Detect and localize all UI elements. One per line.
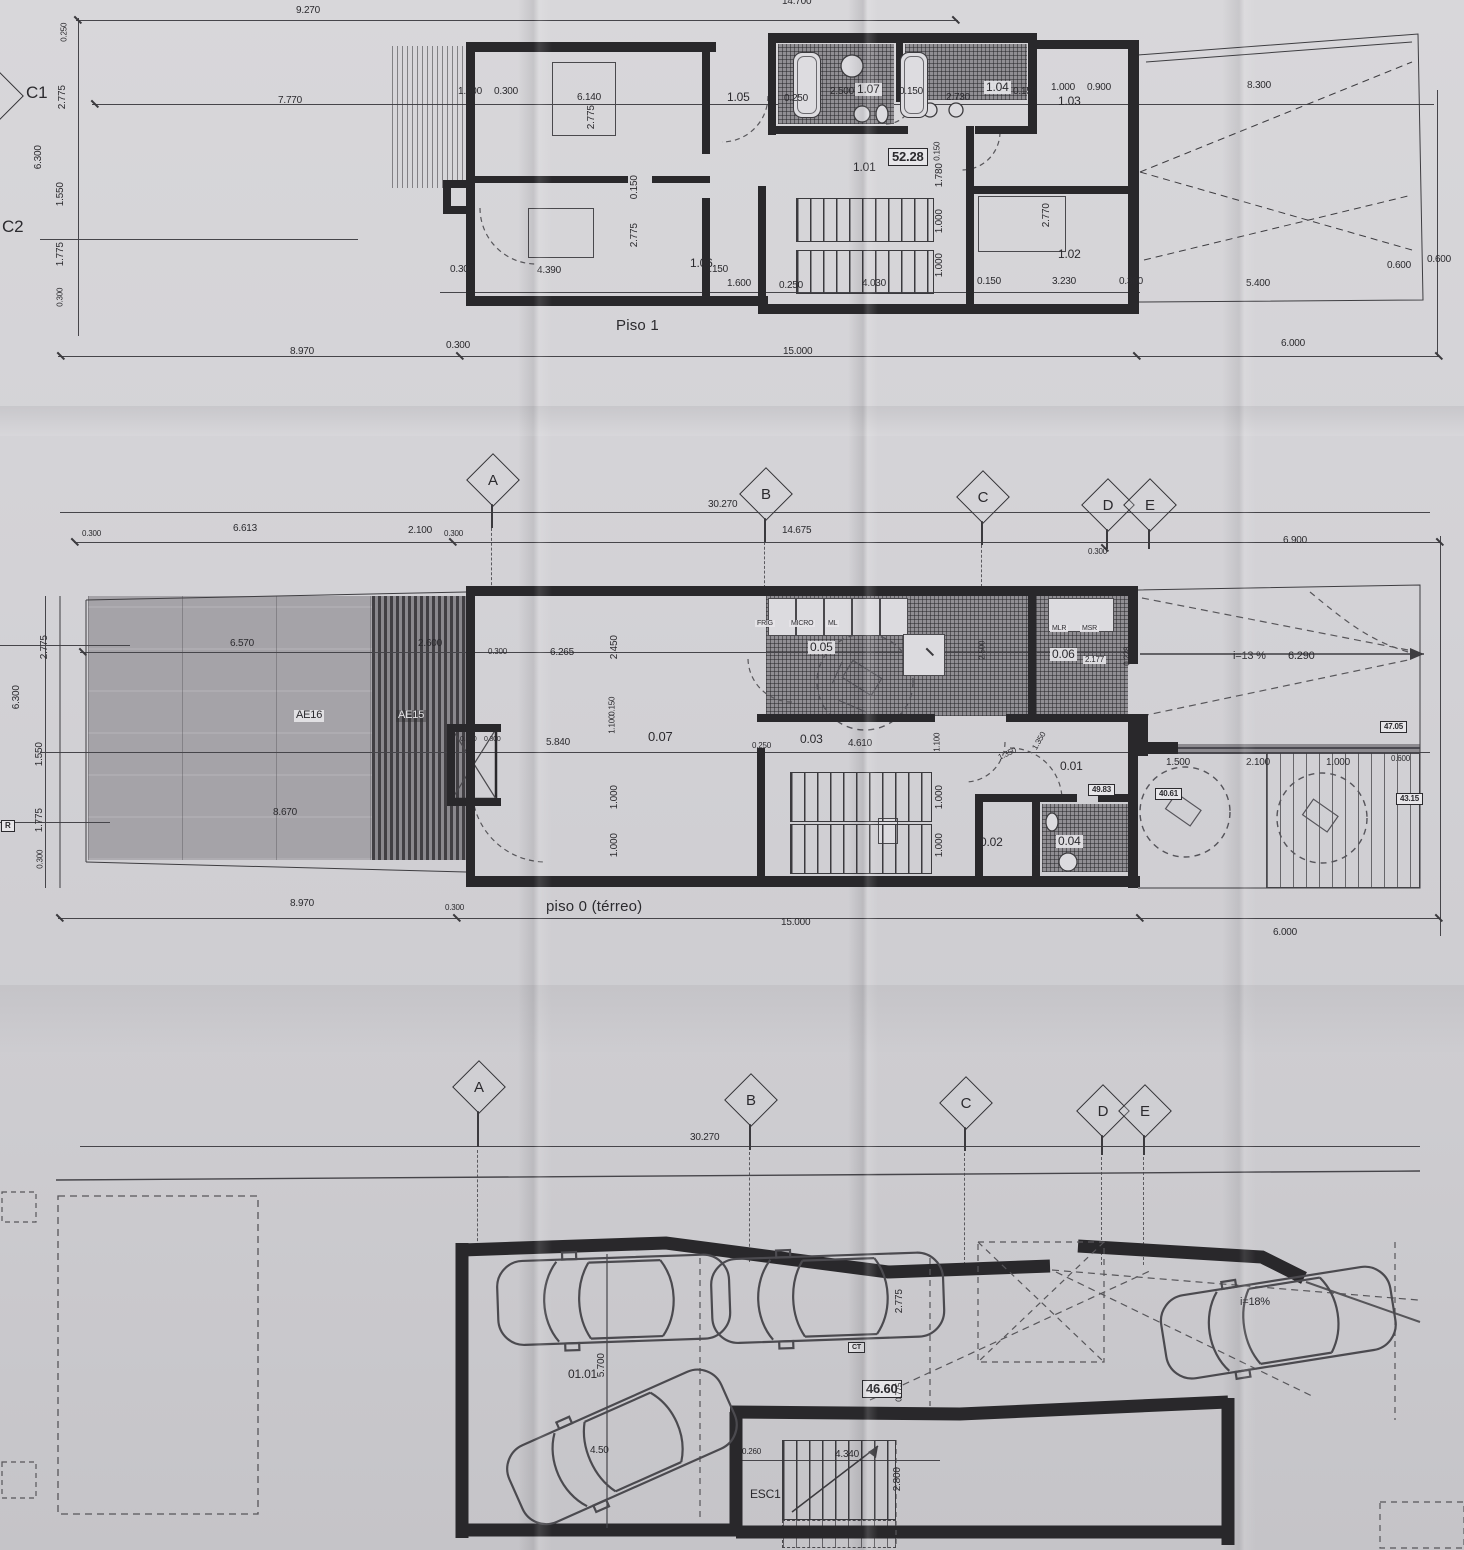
wall — [1006, 714, 1138, 722]
dim-label: 2.800 — [893, 1467, 904, 1491]
dim-line — [40, 239, 358, 240]
appliance-label-micro: MICRO — [789, 620, 815, 627]
dim-label: 0.150 — [933, 142, 941, 161]
dim-label: 1.100 — [933, 733, 941, 752]
area-box: 40.61 — [1155, 788, 1182, 800]
dim-label: 6.000 — [1281, 339, 1305, 350]
dim-label: 0.300 — [56, 288, 64, 307]
dim-label: 4.610 — [848, 739, 872, 750]
dim-label: 2.775 — [630, 223, 641, 247]
dim-label: 1.000 — [1051, 83, 1075, 94]
paper-crease-vertical — [1222, 0, 1256, 1550]
dim-label: 0.300 — [494, 87, 518, 98]
dim-label: 0.300 — [36, 850, 44, 869]
staircase-dashed — [782, 1520, 896, 1548]
stair-label-esc1: ESC1 — [750, 1488, 781, 1501]
wall — [758, 304, 1139, 314]
grid-diamond-c: C — [939, 1076, 993, 1130]
dim-line — [76, 20, 958, 21]
stove — [903, 634, 945, 676]
grid-stem — [981, 521, 983, 545]
wall — [1028, 594, 1036, 720]
dim-label: 15.000 — [781, 918, 810, 929]
wall — [1028, 40, 1138, 49]
dim-label: 6.900 — [1283, 536, 1307, 547]
grid-dash — [764, 542, 765, 588]
room-label: 0.01 — [1060, 760, 1083, 773]
room-label: 0.04 — [1056, 835, 1083, 848]
kitchen-counter — [852, 598, 880, 636]
dim-label: 0.300 — [484, 736, 501, 743]
dim-label: 0.260 — [742, 1448, 761, 1456]
room-label: 0.02 — [980, 836, 1003, 849]
dim-label: 0.250 — [779, 281, 803, 292]
ct-box: CT — [848, 1342, 865, 1353]
dim-label: 7.770 — [278, 96, 302, 107]
wall — [447, 724, 455, 806]
room-label: 1.02 — [1058, 248, 1081, 261]
area-box: 47.05 — [1380, 721, 1407, 733]
dim-label: 0.300 — [488, 648, 507, 656]
dim-line — [74, 542, 1440, 543]
dim-label: 30.270 — [708, 500, 737, 511]
paper-crease-horizontal — [0, 406, 1464, 436]
dim-label: 0.600 — [1387, 261, 1411, 272]
dim-label: 0.510 — [460, 736, 477, 743]
grid-dash — [1101, 1157, 1102, 1265]
staircase — [790, 772, 932, 822]
dim-label: 2.500 — [830, 87, 854, 98]
appliance-label-frig: FRIG — [755, 620, 775, 627]
dim-label: 2.600 — [418, 639, 442, 650]
wall — [757, 714, 935, 722]
dim-label: 2.775 — [895, 1289, 906, 1313]
grid-diamond-e: E — [1118, 1084, 1172, 1138]
dim-label: 0.228 — [1123, 647, 1131, 666]
dim-label: 0.775 — [895, 1383, 903, 1402]
wall — [1128, 40, 1139, 314]
dim-label: 1.600 — [727, 279, 751, 290]
kitchen-counter — [880, 598, 908, 636]
grid-row-label-r: R — [1, 820, 15, 832]
dim-label: 0.300 — [444, 530, 463, 538]
bed-outline — [978, 196, 1066, 252]
dim-label: 1.000 — [935, 253, 946, 277]
dim-label: 2.775 — [587, 105, 598, 129]
appliance-label-mlr: MLR — [1050, 625, 1068, 632]
dim-label: 2.770 — [1042, 203, 1053, 227]
dim-label: 1.000 — [610, 785, 621, 809]
ramp-length-label: 6.290 — [1288, 651, 1315, 663]
dim-line — [0, 645, 130, 646]
dim-label: 6.265 — [550, 648, 574, 659]
wall — [447, 724, 501, 732]
dim-line — [0, 822, 110, 823]
garage-boundary — [2, 1171, 1464, 1548]
dim-label: 14.700 — [782, 0, 811, 8]
blueprint-sheet: 9.270 14.700 C1 C2 7.770 1.500 0.300 6.1… — [0, 0, 1464, 1550]
piso0-ramp-lines — [1140, 592, 1424, 716]
grid-diamond-b: B — [724, 1073, 778, 1127]
dim-label: 1.500 — [1166, 758, 1190, 769]
wall — [1130, 742, 1178, 754]
paper-crease-horizontal — [0, 985, 1464, 1055]
room-label: 1.07 — [855, 83, 882, 96]
dim-label: 1.000 — [610, 833, 621, 857]
dim-label: 0.250 — [752, 742, 771, 750]
dim-line — [78, 18, 79, 336]
grid-dash — [981, 545, 982, 587]
dim-label: 0.900 — [1087, 83, 1111, 94]
dim-label: 5.400 — [1246, 279, 1270, 290]
dim-label: 1.775 — [35, 808, 46, 832]
wall — [1028, 33, 1037, 134]
dim-label: 1.500 — [458, 87, 482, 98]
wall — [443, 206, 469, 214]
room-label: 1.01 — [853, 161, 876, 174]
grid-stem — [477, 1111, 479, 1147]
dim-label: 8.970 — [290, 899, 314, 910]
wall — [966, 126, 974, 314]
dim-label: 0.600 — [1427, 255, 1451, 266]
dim-label: 1.550 — [56, 182, 67, 206]
dim-label: 5.700 — [597, 1353, 608, 1377]
dim-label: 2.730 — [946, 93, 970, 104]
dim-line — [80, 652, 1130, 653]
grid-stem — [491, 504, 493, 528]
grid-diamond-a: A — [466, 453, 520, 507]
dim-label: 1.100 — [608, 715, 616, 734]
plan-title-piso0: piso 0 (térreo) — [546, 899, 642, 915]
dim-label: 0.150 — [608, 697, 616, 716]
dim-label: 0.150 — [1013, 87, 1037, 98]
bathtub — [900, 52, 928, 118]
dim-line — [58, 356, 1440, 357]
grid-stem — [749, 1124, 751, 1150]
dim-label: 6.613 — [233, 524, 257, 535]
dim-label: 1.780 — [935, 163, 946, 187]
kitchen-counter — [796, 598, 824, 636]
kitchen-counter — [824, 598, 852, 636]
dim-label: 15.000 — [783, 347, 812, 358]
dim-label: 0.300 — [446, 341, 470, 352]
wall — [702, 198, 710, 302]
dim-label: 2.500 — [978, 641, 986, 660]
dim-label: 6.140 — [577, 93, 601, 104]
grid-dash — [964, 1153, 965, 1265]
grid-diamond-partial — [0, 69, 24, 123]
dim-label: 0.150 — [704, 265, 728, 276]
deck-hatch — [392, 46, 466, 188]
dim-label: 2.100 — [408, 526, 432, 537]
dim-label: 1.350 — [1031, 731, 1048, 752]
wall — [652, 176, 710, 183]
area-box: 49.83 — [1088, 784, 1115, 796]
dim-label: 4.390 — [537, 266, 561, 277]
appliance-label-ml: ML — [826, 620, 839, 627]
dim-label: 2.100 — [1246, 758, 1270, 769]
area-box: 43.15 — [1396, 793, 1423, 805]
dim-label: 30.270 — [690, 1133, 719, 1144]
dim-label: 0.300 — [1088, 548, 1107, 556]
grid-row-label-c2: C2 — [2, 218, 23, 236]
grid-row-label-c1: C1 — [26, 84, 47, 102]
dim-label: 2.450 — [610, 635, 621, 659]
zone-label-ae16: AE16 — [294, 710, 324, 722]
dim-label: 0.300 — [82, 530, 101, 538]
patio-surface — [88, 596, 372, 860]
wall — [768, 33, 776, 135]
dim-label: 6.300 — [12, 685, 23, 709]
dim-label: 5.840 — [546, 738, 570, 749]
dim-label: 8.670 — [273, 808, 297, 819]
dim-label: 0.250 — [60, 23, 68, 42]
dim-label: 0.250 — [784, 94, 808, 105]
dim-label: 1.000 — [1326, 758, 1350, 769]
dim-label: 6.570 — [230, 639, 254, 650]
dim-label: 6.000 — [1273, 928, 1297, 939]
dim-label: 0.300 — [450, 265, 474, 276]
dim-label: 14.675 — [782, 526, 811, 537]
dim-label: 4.030 — [862, 279, 886, 290]
wall — [447, 798, 501, 806]
wall — [466, 42, 716, 52]
piso1-terrace-lines — [1138, 34, 1423, 302]
staircase — [790, 824, 932, 874]
grid-diamond-a: A — [452, 1060, 506, 1114]
dim-label: 3.230 — [1052, 277, 1076, 288]
dim-label: 2.177 — [1083, 656, 1106, 664]
grid-dash — [491, 528, 492, 590]
room-label: 01.01 — [568, 1368, 597, 1381]
dim-label: 1.000 — [935, 833, 946, 857]
room-label: 0.05 — [808, 641, 835, 654]
grid-diamond-c: C — [956, 470, 1010, 524]
dim-line — [60, 512, 1430, 513]
dim-label: 1.775 — [56, 242, 67, 266]
dim-label: 0.150 — [977, 277, 1001, 288]
dim-label: 0.150 — [630, 175, 641, 199]
grid-stem — [964, 1127, 966, 1151]
grid-diamond-e: E — [1123, 478, 1177, 532]
dim-label: 6.300 — [34, 145, 45, 169]
wall — [466, 296, 768, 306]
area-box: 52.28 — [888, 148, 928, 166]
room-label: 1.03 — [1058, 95, 1081, 108]
room-label: 0.07 — [648, 730, 673, 744]
room-label: 1.05 — [727, 91, 750, 104]
wall — [975, 126, 1037, 134]
wall — [975, 794, 1077, 802]
exterior-steps — [1266, 752, 1420, 888]
dim-line — [40, 752, 1430, 753]
appliance-label-msr: MSR — [1080, 625, 1099, 632]
room-label: 0.06 — [1050, 648, 1077, 661]
dim-label: 8.300 — [1247, 81, 1271, 92]
wall — [466, 586, 1138, 596]
dim-line — [1440, 536, 1441, 936]
grid-dash — [749, 1152, 750, 1262]
dim-label: 1.000 — [935, 785, 946, 809]
kitchen-counter — [768, 598, 796, 636]
wall — [466, 176, 628, 183]
wall — [768, 126, 908, 134]
dim-line — [440, 292, 1140, 293]
dim-label: 8.970 — [290, 347, 314, 358]
dim-label: 0.300 — [1119, 277, 1143, 288]
dim-label: 1.350 — [997, 746, 1018, 762]
room-label: 1.04 — [984, 81, 1011, 94]
wall — [966, 186, 1138, 194]
wall — [757, 748, 765, 886]
dim-label: 0.300 — [445, 904, 464, 912]
wall — [702, 42, 710, 154]
grid-stem — [764, 518, 766, 542]
dim-label: 0.600 — [1391, 755, 1410, 763]
grid-dash — [477, 1150, 478, 1246]
bathtub — [793, 52, 821, 118]
furniture-outline — [528, 208, 594, 258]
appliance-label-lvs: LVS — [1034, 844, 1041, 856]
dim-label: 0.150 — [899, 87, 923, 98]
dim-line — [1437, 90, 1438, 356]
ramp-slope-label: i=13 % — [1233, 651, 1266, 663]
dim-label: 1.000 — [935, 209, 946, 233]
dim-label: 1.550 — [35, 742, 46, 766]
garage-interior-lines — [607, 1242, 1420, 1528]
bathroom-tile-floor — [1042, 804, 1128, 872]
room-label: 0.03 — [800, 733, 823, 746]
plan-title-piso1: Piso 1 — [616, 318, 659, 334]
grid-dash — [1143, 1157, 1144, 1265]
dim-label: 4.340 — [835, 1450, 859, 1461]
ramp-slope-label: i=18% — [1240, 1297, 1270, 1309]
wall — [758, 186, 766, 314]
dim-label: 9.270 — [296, 6, 320, 17]
dim-label: 2.775 — [40, 635, 51, 659]
dim-label: 2.775 — [58, 85, 69, 109]
zone-label-ae15: AE15 — [396, 710, 426, 722]
staircase — [796, 198, 934, 242]
dim-line — [58, 918, 1440, 919]
dim-label: 4.50 — [590, 1446, 609, 1457]
